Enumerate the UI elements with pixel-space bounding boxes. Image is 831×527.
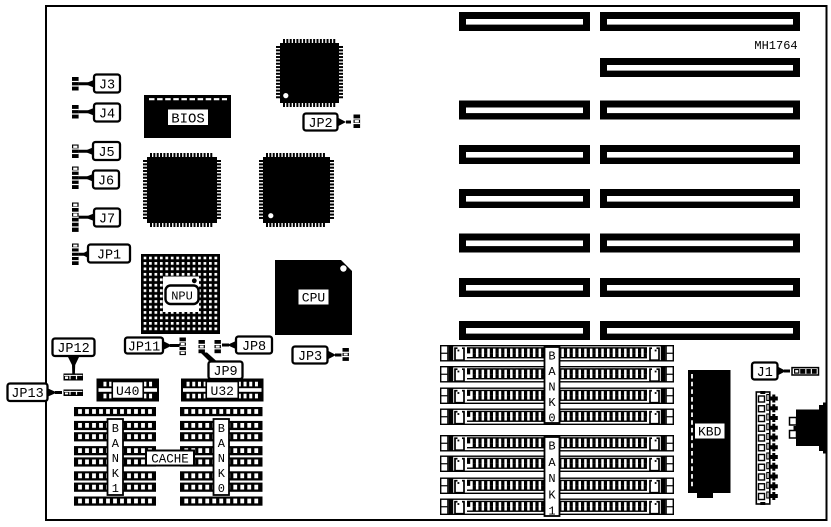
svg-text:A: A: [548, 456, 556, 470]
svg-text:J1: J1: [757, 366, 773, 381]
svg-text:MH1764: MH1764: [754, 39, 797, 53]
svg-text:A: A: [218, 437, 226, 451]
svg-text:JP8: JP8: [242, 340, 266, 355]
svg-text:N: N: [548, 381, 555, 395]
svg-text:U40: U40: [116, 384, 139, 399]
svg-text:K: K: [548, 488, 556, 502]
svg-text:BIOS: BIOS: [171, 111, 205, 127]
svg-text:U32: U32: [211, 384, 234, 399]
svg-text:JP12: JP12: [57, 342, 89, 357]
svg-text:B: B: [218, 422, 225, 436]
svg-text:JP11: JP11: [128, 340, 160, 355]
svg-text:CPU: CPU: [302, 291, 325, 306]
svg-text:B: B: [548, 350, 555, 364]
svg-text:K: K: [548, 396, 556, 410]
svg-text:JP1: JP1: [97, 248, 121, 263]
svg-text:B: B: [112, 422, 119, 436]
svg-text:NPU: NPU: [171, 290, 193, 304]
svg-text:JP2: JP2: [308, 117, 332, 132]
svg-text:1: 1: [112, 482, 119, 496]
svg-text:B: B: [548, 440, 555, 454]
svg-text:CACHE: CACHE: [151, 453, 189, 467]
svg-text:JP13: JP13: [11, 387, 43, 402]
svg-text:J4: J4: [99, 107, 115, 122]
svg-text:J5: J5: [98, 146, 114, 161]
svg-text:0: 0: [218, 482, 225, 496]
svg-text:J3: J3: [99, 78, 115, 93]
svg-text:JP3: JP3: [298, 350, 322, 365]
svg-text:N: N: [112, 452, 119, 466]
svg-text:1: 1: [548, 505, 555, 519]
svg-text:N: N: [218, 452, 225, 466]
svg-text:KBD: KBD: [698, 425, 722, 440]
svg-text:A: A: [548, 365, 556, 379]
svg-text:JP9: JP9: [213, 365, 237, 380]
svg-text:J7: J7: [99, 212, 115, 227]
svg-text:N: N: [548, 472, 555, 486]
svg-text:K: K: [112, 467, 120, 481]
svg-text:A: A: [112, 437, 120, 451]
svg-text:0: 0: [548, 412, 555, 426]
svg-text:K: K: [218, 467, 226, 481]
svg-text:J6: J6: [98, 174, 114, 189]
